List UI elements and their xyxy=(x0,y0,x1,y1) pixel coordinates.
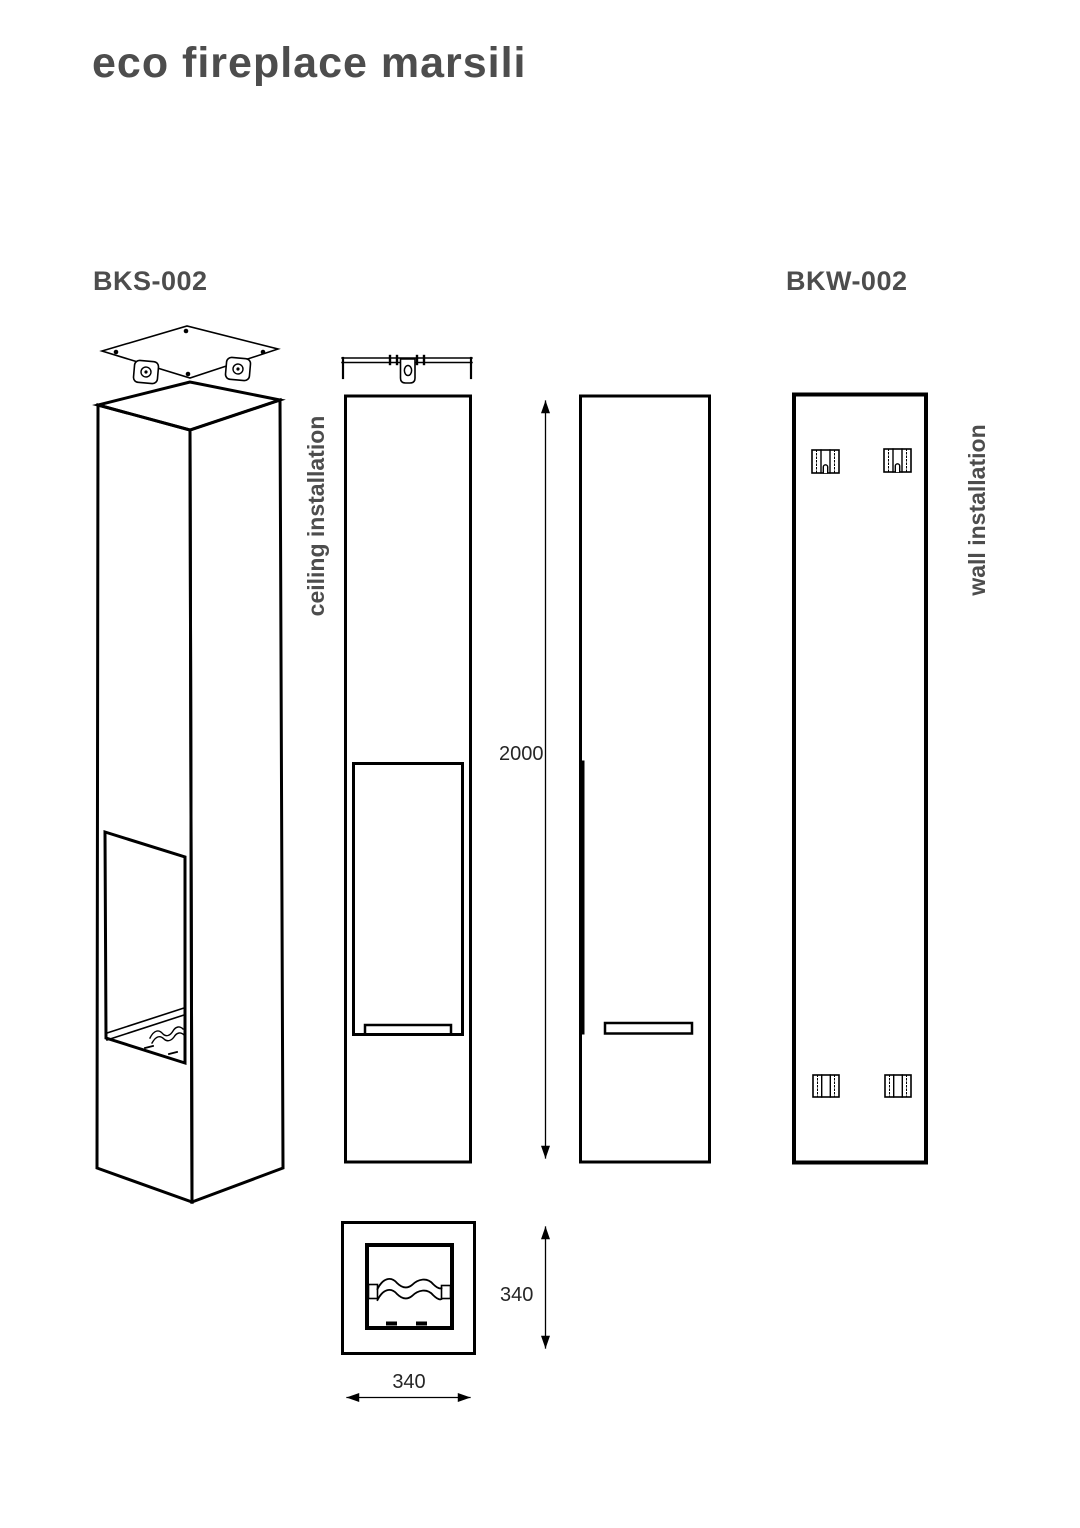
plate-hole xyxy=(114,350,119,355)
wall-bracket-bottom-right xyxy=(885,1075,911,1097)
plate-hole xyxy=(261,350,266,355)
drawing-sheet: eco fireplace marsili BKS-002 BKW-002 ce… xyxy=(0,0,1080,1528)
burner-slot xyxy=(416,1322,427,1326)
ceiling-installation-label: ceiling installation xyxy=(302,366,330,666)
column-isometric xyxy=(97,382,283,1202)
height-dimension-label: 2000 xyxy=(499,744,544,764)
plate-bracket-right xyxy=(225,357,251,381)
model-code-bkw: BKW-002 xyxy=(786,268,907,295)
firebox-opening-front xyxy=(354,764,463,1035)
ceiling-plate-front xyxy=(342,356,472,383)
ceiling-plate-isometric xyxy=(102,326,278,384)
firebox-opening-isometric xyxy=(105,832,185,1063)
back-panel-outline xyxy=(794,395,926,1163)
burner-slot xyxy=(386,1322,397,1326)
bottom-outline xyxy=(343,1223,475,1354)
burner-side xyxy=(605,1023,692,1034)
page-title: eco fireplace marsili xyxy=(92,42,527,85)
wall-bracket-top-right xyxy=(884,449,911,472)
back-view xyxy=(794,395,926,1163)
wall-bracket-top-left xyxy=(812,450,839,473)
front-view xyxy=(342,356,472,1162)
bottom-view xyxy=(343,1223,475,1354)
wall-installation-label: wall installation xyxy=(963,360,991,660)
burner-top-view xyxy=(369,1279,451,1326)
isometric-view xyxy=(97,326,283,1202)
width-dimension-label: 340 xyxy=(346,1372,472,1392)
plate-bracket-left xyxy=(133,360,159,384)
side-panel-outline xyxy=(581,396,710,1162)
wall-bracket-bottom-left xyxy=(813,1075,839,1097)
depth-dimension-label: 340 xyxy=(500,1285,533,1305)
plate-hole xyxy=(184,329,189,334)
plate-hole xyxy=(186,372,191,377)
plate-bracket-front xyxy=(401,359,416,383)
front-panel-outline xyxy=(346,396,471,1162)
burner-isometric xyxy=(150,1027,183,1038)
model-code-bks: BKS-002 xyxy=(93,268,208,295)
side-view xyxy=(581,396,710,1162)
